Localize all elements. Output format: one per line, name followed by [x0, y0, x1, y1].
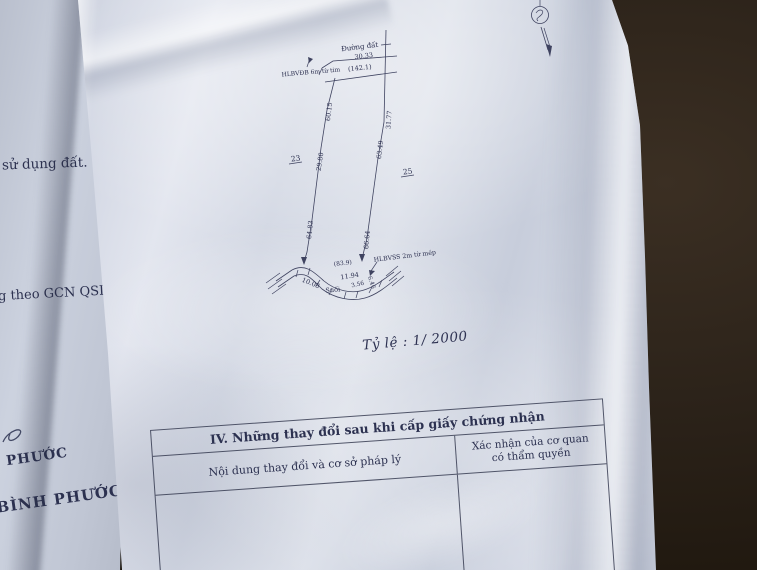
stream-corridor-label: HLBVSS 2m từ mép — [373, 249, 436, 264]
road-corridor-label: HLBVĐB 6m từ tim — [281, 66, 340, 78]
boundary-end-tick — [301, 257, 307, 265]
dim-right-2: 63.49 — [375, 140, 385, 159]
dim-right-1: 31.77 — [384, 110, 393, 129]
frontage-total: (142.1) — [348, 63, 373, 73]
dim-left-3: 64.83 — [305, 220, 315, 239]
stream-dim-3: 3.56 — [351, 281, 365, 290]
dim-right-3: 66.64 — [362, 230, 372, 249]
stream-dim-1: 10.08 — [301, 276, 321, 290]
dim-left-2: 29.80 — [315, 152, 326, 172]
stream-dim-4: 6.46 — [366, 276, 376, 290]
stream-label: Suối — [325, 284, 340, 294]
dim-left-1: 60.15 — [324, 102, 334, 121]
changes-body-right-cell — [458, 464, 618, 570]
stream-dim-2: 11.94 — [340, 271, 360, 282]
boundary-end-tick — [359, 254, 365, 262]
photo-of-land-certificate: sử dụng đất. g theo GCN QSDĐ PHƯỚC BÌNH … — [0, 0, 757, 570]
road-label: Đường đất — [341, 40, 379, 53]
road-length: 30.33 — [354, 51, 373, 61]
road-corridor-arrow — [307, 57, 313, 67]
stream-total: (83.9) — [334, 259, 353, 268]
north-arrow-icon — [532, 0, 553, 57]
changes-table: IV. Những thay đổi sau khi cấp giấy chứn… — [150, 398, 619, 570]
